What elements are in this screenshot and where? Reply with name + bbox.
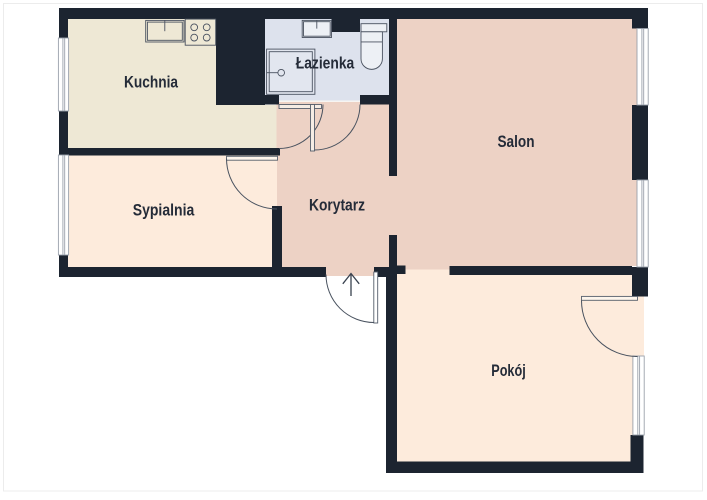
- svg-text:Sypialnia: Sypialnia: [133, 202, 195, 220]
- svg-text:Kuchnia: Kuchnia: [124, 74, 179, 92]
- svg-text:Korytarz: Korytarz: [309, 197, 365, 215]
- svg-text:Łazienka: Łazienka: [296, 55, 355, 73]
- svg-text:Pokój: Pokój: [491, 362, 526, 380]
- svg-text:Salon: Salon: [498, 133, 535, 151]
